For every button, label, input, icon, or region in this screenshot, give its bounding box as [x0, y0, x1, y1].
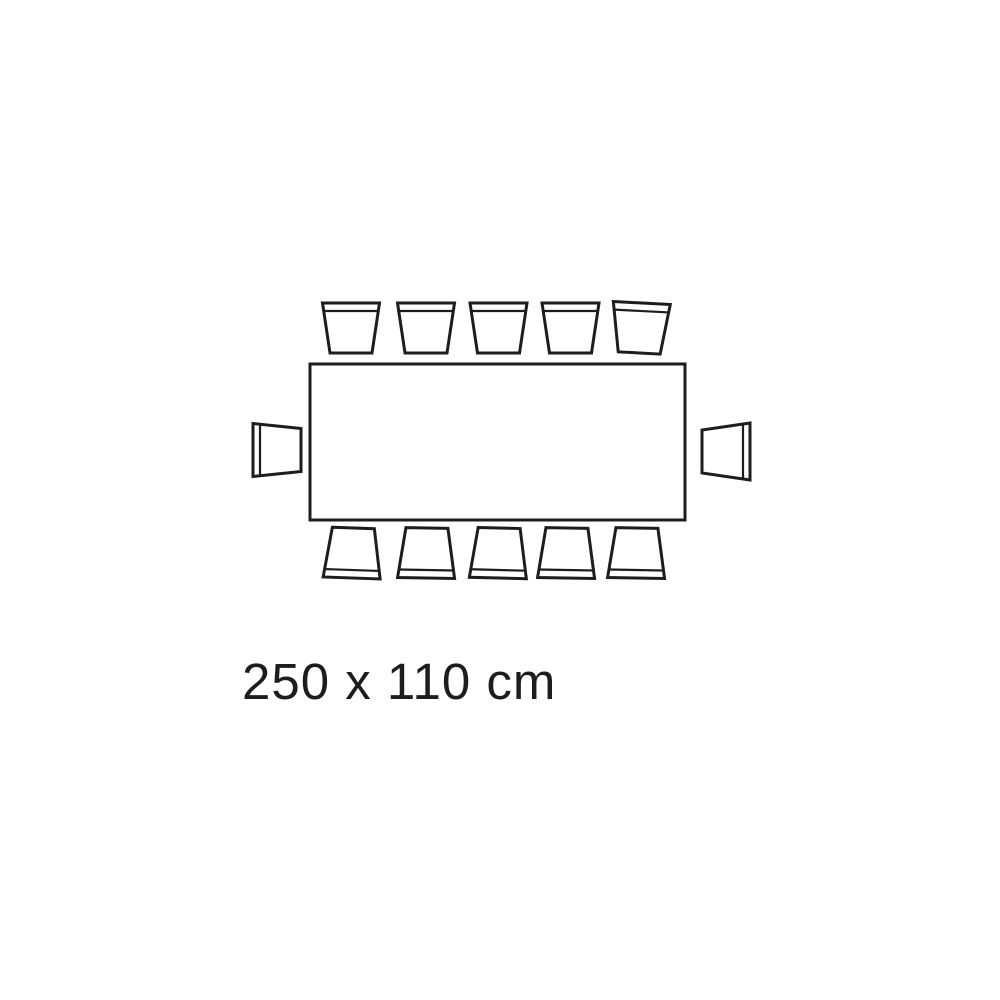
chair-top-2: [398, 303, 455, 353]
table-top: [310, 364, 685, 520]
chair-bottom-3: [469, 527, 527, 578]
table-dimensions-label: 250 x 110 cm: [242, 652, 556, 711]
chair-bottom-5: [608, 528, 666, 579]
chair-bottom-4: [538, 528, 596, 579]
chair-right-1: [702, 423, 750, 480]
chair-bottom-3-backrest: [471, 569, 526, 570]
chair-bottom-2: [398, 528, 456, 579]
chair-bottom-2-backrest: [399, 570, 454, 571]
chair-top-4: [542, 303, 599, 353]
seating-diagram-page: 250 x 110 cm: [0, 0, 1000, 1000]
chair-bottom-5-backrest: [609, 570, 664, 571]
table-seating-diagram: [0, 0, 1000, 1000]
chair-bottom-1: [323, 527, 382, 579]
chair-top-5: [611, 302, 671, 355]
chair-left-1: [253, 424, 301, 477]
chair-top-3: [470, 303, 527, 353]
chair-bottom-4-backrest: [539, 570, 594, 571]
chair-top-1: [323, 303, 380, 353]
